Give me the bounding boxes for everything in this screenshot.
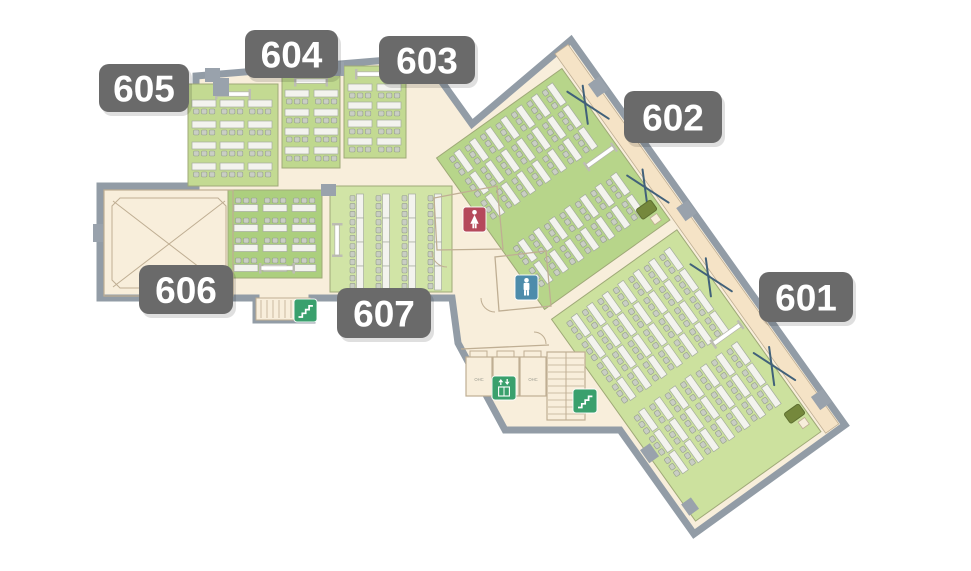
desk-chair xyxy=(236,218,242,223)
desk-chair xyxy=(294,137,300,142)
room-badge-label: 606 xyxy=(155,270,217,311)
desk-chair xyxy=(265,258,271,263)
desk-chair xyxy=(402,268,407,274)
desk-chair xyxy=(331,99,337,104)
desk-chair xyxy=(350,268,355,274)
desk-chair xyxy=(379,129,385,134)
desk-chair xyxy=(350,111,356,116)
room-605 xyxy=(188,84,278,186)
desk-table xyxy=(292,225,316,232)
desk-table xyxy=(263,205,287,212)
desk-chair xyxy=(357,93,363,98)
desk-chair xyxy=(402,227,407,233)
desk-chair xyxy=(323,156,329,161)
desk-chair xyxy=(350,227,355,233)
desk-chair xyxy=(379,93,385,98)
desk-chair xyxy=(379,147,385,152)
desk-table xyxy=(263,245,287,252)
desk-chair xyxy=(428,227,433,233)
desk-chair xyxy=(402,203,407,209)
desk-chair xyxy=(222,151,228,156)
desk-chair xyxy=(386,147,392,152)
desk-table xyxy=(314,109,338,116)
desk-chair xyxy=(201,130,207,135)
desk-chair xyxy=(257,151,263,156)
desk-chair xyxy=(222,109,228,114)
desk-chair xyxy=(257,172,263,177)
desk-table xyxy=(314,90,338,97)
desk-chair xyxy=(250,130,256,135)
desk-chair xyxy=(237,130,243,135)
desk-chair xyxy=(302,156,308,161)
floor-plan-svg: OHCOHC601602603604605606607 xyxy=(0,0,971,571)
desk-chair xyxy=(323,137,329,142)
desk-chair xyxy=(294,198,300,203)
desk-chair xyxy=(287,137,293,142)
desk-chair xyxy=(402,283,407,289)
desk-chair xyxy=(302,99,308,104)
leg xyxy=(472,224,474,229)
desk-chair xyxy=(350,129,356,134)
desk-chair xyxy=(350,251,355,257)
desk-chair xyxy=(201,109,207,114)
desk-chair xyxy=(250,151,256,156)
room-badge-602: 602 xyxy=(624,91,725,147)
head xyxy=(524,278,529,283)
desk-chair xyxy=(280,198,286,203)
room-badge-label: 607 xyxy=(353,294,415,335)
desk-table xyxy=(357,218,364,242)
desk-table xyxy=(348,138,372,145)
desk-chair xyxy=(243,218,249,223)
desk-chair xyxy=(376,283,381,289)
desk-chair xyxy=(272,258,278,263)
desk-chair xyxy=(376,259,381,265)
desk-chair xyxy=(209,130,215,135)
desk-chair xyxy=(350,283,355,289)
desk-chair xyxy=(402,275,407,281)
desk-table xyxy=(348,102,372,109)
desk-table xyxy=(377,102,401,109)
desk-table xyxy=(220,163,244,170)
desk-chair xyxy=(316,118,322,123)
desk-chair xyxy=(376,268,381,274)
desk-table xyxy=(220,121,244,128)
wall-column xyxy=(213,78,229,96)
desk-chair xyxy=(376,275,381,281)
desk-chair xyxy=(428,259,433,265)
desk-chair xyxy=(350,147,356,152)
room-badge-606: 606 xyxy=(139,265,236,318)
desk-chair xyxy=(209,172,215,177)
desk-chair xyxy=(251,258,256,263)
room-badge-label: 605 xyxy=(113,69,175,110)
desk-chair xyxy=(194,109,200,114)
desk-table xyxy=(435,266,442,290)
desk-table xyxy=(314,147,338,154)
desk-chair xyxy=(236,238,242,243)
desk-chair xyxy=(428,283,433,289)
stairs-icon-main xyxy=(573,389,597,413)
room-badge-label: 602 xyxy=(642,98,704,139)
wall-column xyxy=(321,184,336,196)
desk-chair xyxy=(280,238,286,243)
desk-chair xyxy=(272,238,278,243)
desk-chair xyxy=(294,238,300,243)
desk-chair xyxy=(194,151,200,156)
room-badge-603: 603 xyxy=(379,36,478,88)
desk-chair xyxy=(194,172,200,177)
desk-chair xyxy=(316,99,322,104)
desk-chair xyxy=(272,218,278,223)
wall-column xyxy=(93,224,103,242)
desk-chair xyxy=(257,130,263,135)
desk-table xyxy=(248,142,272,149)
desk-chair xyxy=(386,93,392,98)
desk-chair xyxy=(365,147,371,152)
desk-chair xyxy=(323,118,329,123)
desk-chair xyxy=(428,268,433,274)
desk-chair xyxy=(280,218,286,223)
desk-chair xyxy=(294,156,300,161)
desk-table xyxy=(192,163,216,170)
room-606 xyxy=(228,190,322,278)
desk-chair xyxy=(237,172,243,177)
desk-table xyxy=(248,163,272,170)
desk-chair xyxy=(243,258,249,263)
desk-chair xyxy=(365,93,371,98)
desk-table xyxy=(357,242,364,266)
desk-chair xyxy=(287,99,293,104)
desk-chair xyxy=(394,147,400,152)
desk-table xyxy=(377,120,401,127)
desk-chair xyxy=(376,211,381,217)
desk-chair xyxy=(209,151,215,156)
desk-table xyxy=(234,265,258,272)
desk-table xyxy=(292,265,316,272)
desk-chair xyxy=(201,151,207,156)
down-arrow-stem xyxy=(507,379,508,382)
room-badge-601: 601 xyxy=(759,272,856,326)
desk-chair xyxy=(376,235,381,241)
desk-chair xyxy=(257,109,263,114)
desk-chair xyxy=(229,109,235,114)
desk-chair xyxy=(357,147,363,152)
desk-chair xyxy=(350,259,355,265)
desk-chair xyxy=(287,156,293,161)
desk-table xyxy=(234,205,258,212)
room-badge-605: 605 xyxy=(99,64,192,116)
desk-chair xyxy=(357,129,363,134)
desk-table xyxy=(409,194,416,218)
leg xyxy=(527,290,529,295)
projector-screen xyxy=(335,225,340,255)
elevator-shaft-label: OHC xyxy=(528,377,537,382)
desk-table xyxy=(314,128,338,135)
desk-chair xyxy=(376,227,381,233)
desk-chair xyxy=(250,172,256,177)
up-arrow-stem xyxy=(500,382,501,385)
desk-chair xyxy=(350,196,355,202)
desk-chair xyxy=(379,111,385,116)
desk-chair xyxy=(251,218,256,223)
desk-chair xyxy=(229,130,235,135)
desk-table xyxy=(192,100,216,107)
desk-chair xyxy=(331,156,337,161)
desk-table xyxy=(357,194,364,218)
desk-chair xyxy=(323,99,329,104)
desk-table xyxy=(383,266,390,290)
room-604 xyxy=(282,72,340,168)
desk-chair xyxy=(402,251,407,257)
desk-chair xyxy=(428,275,433,281)
desk-chair xyxy=(287,118,293,123)
desk-table xyxy=(292,245,316,252)
desk-chair xyxy=(265,130,271,135)
elevator-shaft-label: OHC xyxy=(474,377,483,382)
desk-chair xyxy=(428,235,433,241)
desk-chair xyxy=(402,235,407,241)
desk-chair xyxy=(236,258,242,263)
desk-chair xyxy=(301,198,307,203)
desk-chair xyxy=(402,211,407,217)
desk-chair xyxy=(201,172,207,177)
desk-chair xyxy=(357,111,363,116)
desk-chair xyxy=(394,111,400,116)
desk-chair xyxy=(309,238,315,243)
desk-table xyxy=(248,100,272,107)
desk-table xyxy=(234,225,258,232)
desk-chair xyxy=(236,198,242,203)
desk-chair xyxy=(394,93,400,98)
desk-chair xyxy=(365,111,371,116)
projector-screen xyxy=(261,266,293,271)
desk-table xyxy=(292,205,316,212)
room-badge-label: 604 xyxy=(261,35,323,76)
desk-table xyxy=(192,121,216,128)
desk-chair xyxy=(402,259,407,265)
elevator-icon xyxy=(492,376,516,400)
desk-chair xyxy=(229,151,235,156)
desk-chair xyxy=(302,137,308,142)
desk-chair xyxy=(350,244,355,250)
desk-chair xyxy=(402,196,407,202)
desk-chair xyxy=(428,203,433,209)
desk-chair xyxy=(251,238,256,243)
desk-table xyxy=(377,138,401,145)
desk-chair xyxy=(229,172,235,177)
body xyxy=(524,283,530,290)
desk-chair xyxy=(294,258,300,263)
desk-chair xyxy=(331,118,337,123)
desk-chair xyxy=(350,220,355,226)
desk-table xyxy=(220,100,244,107)
desk-chair xyxy=(301,218,307,223)
desk-chair xyxy=(272,198,278,203)
desk-table xyxy=(348,84,372,91)
desk-chair xyxy=(428,244,433,250)
desk-chair xyxy=(350,93,356,98)
head xyxy=(472,210,477,215)
desk-chair xyxy=(376,251,381,257)
leg xyxy=(475,224,477,229)
desk-chair xyxy=(250,109,256,114)
desk-chair xyxy=(376,196,381,202)
desk-table xyxy=(285,109,309,116)
desk-chair xyxy=(265,172,271,177)
desk-chair xyxy=(376,203,381,209)
room-badge-604: 604 xyxy=(245,30,341,82)
mens-restroom-icon xyxy=(515,275,538,300)
desk-table xyxy=(357,266,364,290)
desk-chair xyxy=(428,220,433,226)
desk-chair xyxy=(428,211,433,217)
desk-chair xyxy=(386,111,392,116)
desk-table xyxy=(192,142,216,149)
desk-chair xyxy=(394,129,400,134)
desk-chair xyxy=(386,129,392,134)
desk-chair xyxy=(309,198,315,203)
stairs-icon-west xyxy=(294,299,317,322)
desk-chair xyxy=(294,218,300,223)
desk-chair xyxy=(265,218,271,223)
desk-table xyxy=(263,225,287,232)
desk-table xyxy=(220,142,244,149)
floor-plan: OHCOHC601602603604605606607 xyxy=(0,0,971,571)
desk-table xyxy=(383,194,390,218)
desk-chair xyxy=(350,211,355,217)
desk-table xyxy=(409,218,416,242)
desk-chair xyxy=(316,156,322,161)
desk-chair xyxy=(402,220,407,226)
desk-table xyxy=(234,245,258,252)
desk-chair xyxy=(350,235,355,241)
desk-chair xyxy=(265,198,271,203)
desk-chair xyxy=(402,244,407,250)
desk-chair xyxy=(428,196,433,202)
desk-chair xyxy=(294,99,300,104)
desk-chair xyxy=(243,198,249,203)
desk-chair xyxy=(237,151,243,156)
leg xyxy=(524,290,526,295)
desk-table xyxy=(248,121,272,128)
desk-chair xyxy=(280,258,286,263)
desk-chair xyxy=(243,238,249,243)
desk-chair xyxy=(222,130,228,135)
desk-chair xyxy=(309,258,315,263)
desk-chair xyxy=(301,258,307,263)
desk-table xyxy=(383,218,390,242)
desk-chair xyxy=(194,130,200,135)
desk-table xyxy=(409,266,416,290)
desk-chair xyxy=(265,109,271,114)
room-badge-607: 607 xyxy=(337,288,434,342)
desk-table xyxy=(285,147,309,154)
desk-chair xyxy=(376,220,381,226)
desk-chair xyxy=(376,244,381,250)
desk-chair xyxy=(350,203,355,209)
desk-table xyxy=(285,90,309,97)
desk-chair xyxy=(265,238,271,243)
desk-chair xyxy=(316,137,322,142)
desk-chair xyxy=(209,109,215,114)
desk-chair xyxy=(222,172,228,177)
room-badge-label: 601 xyxy=(775,278,837,319)
desk-chair xyxy=(350,275,355,281)
womens-restroom-icon xyxy=(463,207,486,232)
desk-chair xyxy=(265,151,271,156)
desk-chair xyxy=(309,218,315,223)
desk-chair xyxy=(302,118,308,123)
desk-chair xyxy=(237,109,243,114)
desk-chair xyxy=(294,118,300,123)
desk-table xyxy=(348,120,372,127)
desk-table xyxy=(383,242,390,266)
room-badge-label: 603 xyxy=(396,41,458,82)
desk-chair xyxy=(301,238,307,243)
desk-chair xyxy=(365,129,371,134)
desk-table xyxy=(409,242,416,266)
desk-table xyxy=(285,128,309,135)
desk-chair xyxy=(251,198,256,203)
desk-chair xyxy=(331,137,337,142)
